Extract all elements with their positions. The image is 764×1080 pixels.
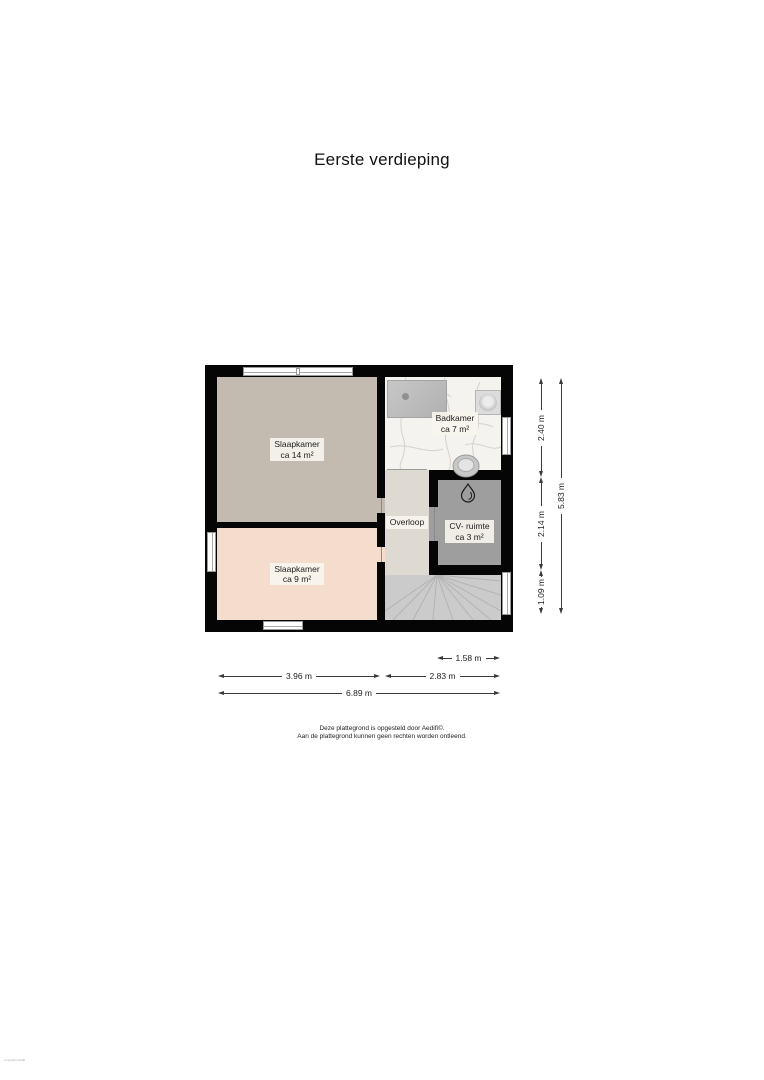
dimension-bottom-3-96: 3.96 m [218, 671, 380, 681]
room-name: Slaapkamer [274, 439, 319, 449]
room-area: ca 14 m² [274, 450, 319, 460]
dimension-right-1-09: 1.09 m [535, 570, 547, 614]
window-glass [212, 533, 213, 571]
dimension-label: 1.58 m [452, 653, 486, 663]
door-badkamer [387, 469, 427, 470]
room-label: CV- ruimte ca 3 m² [445, 520, 493, 542]
room-label: Slaapkamer ca 14 m² [270, 438, 323, 460]
room-label: Slaapkamer ca 9 m² [270, 563, 323, 585]
room-name: Overloop [390, 517, 425, 527]
room-overloop: Overloop [385, 470, 429, 575]
stair-treads [385, 575, 501, 620]
watermark: Copyright Aedifi [4, 1058, 25, 1062]
window-bottom [263, 621, 303, 630]
dimension-label: 2.14 m [536, 511, 546, 537]
room-name: Slaapkamer [274, 564, 319, 574]
page: Eerste verdieping Slaapkamer ca 14 m² [0, 0, 764, 1080]
window-right-badkamer [502, 417, 511, 455]
window-glass [264, 626, 302, 627]
flame-icon [459, 483, 477, 503]
room-area: ca 9 m² [274, 574, 319, 584]
disclaimer-line-1: Deze plattegrond is opgesteld door Aedif… [0, 725, 764, 733]
toilet-icon [450, 453, 482, 479]
window-top [243, 367, 353, 376]
door-leaf [434, 507, 435, 541]
room-name: Badkamer [436, 413, 475, 423]
shower-drain-icon [402, 393, 409, 400]
room-area: ca 7 m² [436, 424, 475, 434]
stairs [385, 575, 501, 620]
dimension-label: 1.09 m [536, 579, 546, 605]
door-leaf [381, 547, 382, 562]
window-mullion [296, 368, 300, 375]
dimension-label: 2.83 m [426, 671, 460, 681]
window-right-stairs [502, 572, 511, 615]
window-left [207, 532, 216, 572]
door-slaapkamer-9 [377, 547, 385, 562]
dimension-right-2-14: 2.14 m [535, 477, 547, 570]
window-glass [507, 573, 508, 614]
dimension-label: 5.83 m [556, 483, 566, 509]
dimension-bottom-1-58: 1.58 m [437, 653, 500, 663]
room-area: ca 3 m² [449, 532, 489, 542]
dimension-right-2-40: 2.40 m [535, 378, 547, 477]
door-slaapkamer-14 [377, 498, 385, 513]
door-cv-ruimte [429, 507, 438, 541]
sink-icon [479, 394, 497, 411]
room-label: Badkamer ca 7 m² [432, 412, 479, 434]
dimension-right-total-5-83: 5.83 m [555, 378, 567, 614]
dimension-bottom-2-83: 2.83 m [385, 671, 500, 681]
room-name: CV- ruimte [449, 521, 489, 531]
dimension-label: 3.96 m [282, 671, 316, 681]
page-title: Eerste verdieping [0, 150, 764, 170]
room-slaapkamer-9: Slaapkamer ca 9 m² [217, 528, 377, 620]
dimension-label: 6.89 m [342, 688, 376, 698]
window-glass [507, 418, 508, 454]
dimension-bottom-total-6-89: 6.89 m [218, 688, 500, 698]
room-slaapkamer-14: Slaapkamer ca 14 m² [217, 377, 377, 522]
disclaimer-line-2: Aan de plattegrond kunnen geen rechten w… [0, 733, 764, 741]
room-label: Overloop [386, 516, 429, 528]
door-leaf [381, 498, 382, 513]
dimension-label: 2.40 m [536, 415, 546, 441]
disclaimer: Deze plattegrond is opgesteld door Aedif… [0, 725, 764, 741]
sink-counter [475, 390, 501, 415]
floor-plan: Slaapkamer ca 14 m² Badkamer ca 7 m² [205, 365, 513, 632]
